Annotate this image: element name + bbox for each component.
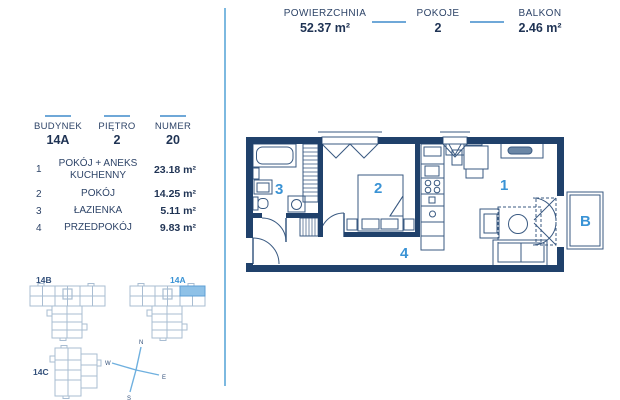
stat-rooms-label: POKOJE (408, 8, 468, 19)
coffee-table-icon (509, 215, 528, 234)
highlighted-unit (180, 286, 205, 296)
stat-rooms-value: 2 (408, 21, 468, 35)
legend-row-name: ŁAZIENKA (54, 205, 142, 217)
legend-row-number: 3 (28, 206, 54, 217)
legend-row-name: PRZEDPOKÓJ (54, 222, 142, 234)
room-label-1: 1 (500, 177, 508, 194)
legend-row: 1 POKÓJ + ANEKS KUCHENNY 23.18 m² (28, 158, 196, 181)
field-topline (45, 115, 71, 117)
field-building-value: 14A (30, 133, 86, 147)
header-dash (470, 21, 504, 23)
site-plan-14c-label: 14C (33, 367, 49, 377)
entrance-door-icon (253, 238, 279, 264)
field-building-label: BUDYNEK (30, 121, 86, 132)
field-floor: PIĘTRO 2 (92, 115, 142, 147)
stat-area-value: 52.37 m² (270, 21, 380, 35)
legend-row-name: POKÓJ (54, 188, 142, 200)
window-bedroom-icon (318, 132, 382, 158)
field-number-label: NUMER (148, 121, 198, 132)
field-topline (160, 115, 186, 117)
bathtub-icon (253, 144, 296, 167)
legend-row: 2 POKÓJ 14.25 m² (28, 188, 196, 200)
stat-balcony-label: BALKON (505, 8, 575, 19)
stat-balcony-value: 2.46 m² (505, 21, 575, 35)
field-floor-value: 2 (92, 133, 142, 147)
toilet-icon (253, 197, 268, 210)
legend-row-area: 14.25 m² (142, 188, 196, 200)
stat-area-label: POWIERZCHNIA (270, 8, 380, 19)
floor-plan: 3 2 1 4 B (236, 112, 616, 292)
shelf-cabinet-icon (303, 144, 318, 202)
site-plan-14b (30, 284, 105, 341)
room-label-4: 4 (400, 245, 409, 262)
header-dash (372, 21, 406, 23)
field-number: NUMER 20 (148, 115, 198, 147)
field-number-value: 20 (148, 133, 198, 147)
armchair-icon (480, 209, 499, 238)
room-legend: 1 POKÓJ + ANEKS KUCHENNY 23.18 m² 2 POKÓ… (28, 158, 196, 239)
legend-row-area: 23.18 m² (142, 164, 196, 176)
bathroom-door-icon (262, 218, 286, 242)
compass-south: S (127, 396, 131, 400)
room-label-2: 2 (374, 180, 382, 197)
legend-row-area: 9.83 m² (142, 222, 196, 234)
field-building: BUDYNEK 14A (30, 115, 86, 147)
site-plan-14c (50, 346, 101, 399)
field-floor-label: PIĘTRO (92, 121, 142, 132)
compass: N S W E (105, 340, 166, 400)
legend-row-number: 4 (28, 223, 54, 234)
washing-machine-icon (288, 196, 305, 212)
site-plans-svg: 14B 14A (10, 274, 220, 400)
vertical-divider (224, 8, 226, 386)
kitchen-counter-icon (421, 144, 444, 250)
sink-icon (253, 168, 272, 194)
bedroom-door-icon (320, 213, 344, 237)
compass-west: W (105, 361, 111, 367)
dining-table-icon (452, 139, 488, 178)
site-plan-14a-label: 14A (170, 275, 186, 285)
legend-row-number: 1 (28, 164, 54, 175)
stat-rooms: POKOJE 2 (408, 8, 468, 35)
legend-row-number: 2 (28, 189, 54, 200)
sideboard-icon (501, 143, 543, 158)
balcony-threshold (536, 198, 556, 245)
floor-plan-svg: 3 2 1 4 B (236, 112, 616, 292)
site-plans: 14B 14A (10, 274, 220, 400)
rug-icon (498, 207, 541, 243)
legend-row-area: 5.11 m² (142, 205, 196, 217)
room-label-3: 3 (275, 181, 283, 198)
legend-row: 4 PRZEDPOKÓJ 9.83 m² (28, 222, 196, 234)
legend-row-name: POKÓJ + ANEKS KUCHENNY (54, 158, 142, 181)
field-topline (104, 115, 130, 117)
stat-balcony: BALKON 2.46 m² (505, 8, 575, 35)
stat-area: POWIERZCHNIA 52.37 m² (270, 8, 380, 35)
hall-cabinet-icon (300, 218, 320, 236)
compass-east: E (162, 375, 166, 381)
legend-row: 3 ŁAZIENKA 5.11 m² (28, 205, 196, 217)
compass-north: N (139, 340, 143, 346)
balcony-label: B (580, 213, 591, 230)
floor-plan-card: POWIERZCHNIA 52.37 m² POKOJE 2 BALKON 2.… (0, 0, 620, 400)
site-plan-14a (130, 284, 205, 341)
site-plan-14b-label: 14B (36, 275, 52, 285)
